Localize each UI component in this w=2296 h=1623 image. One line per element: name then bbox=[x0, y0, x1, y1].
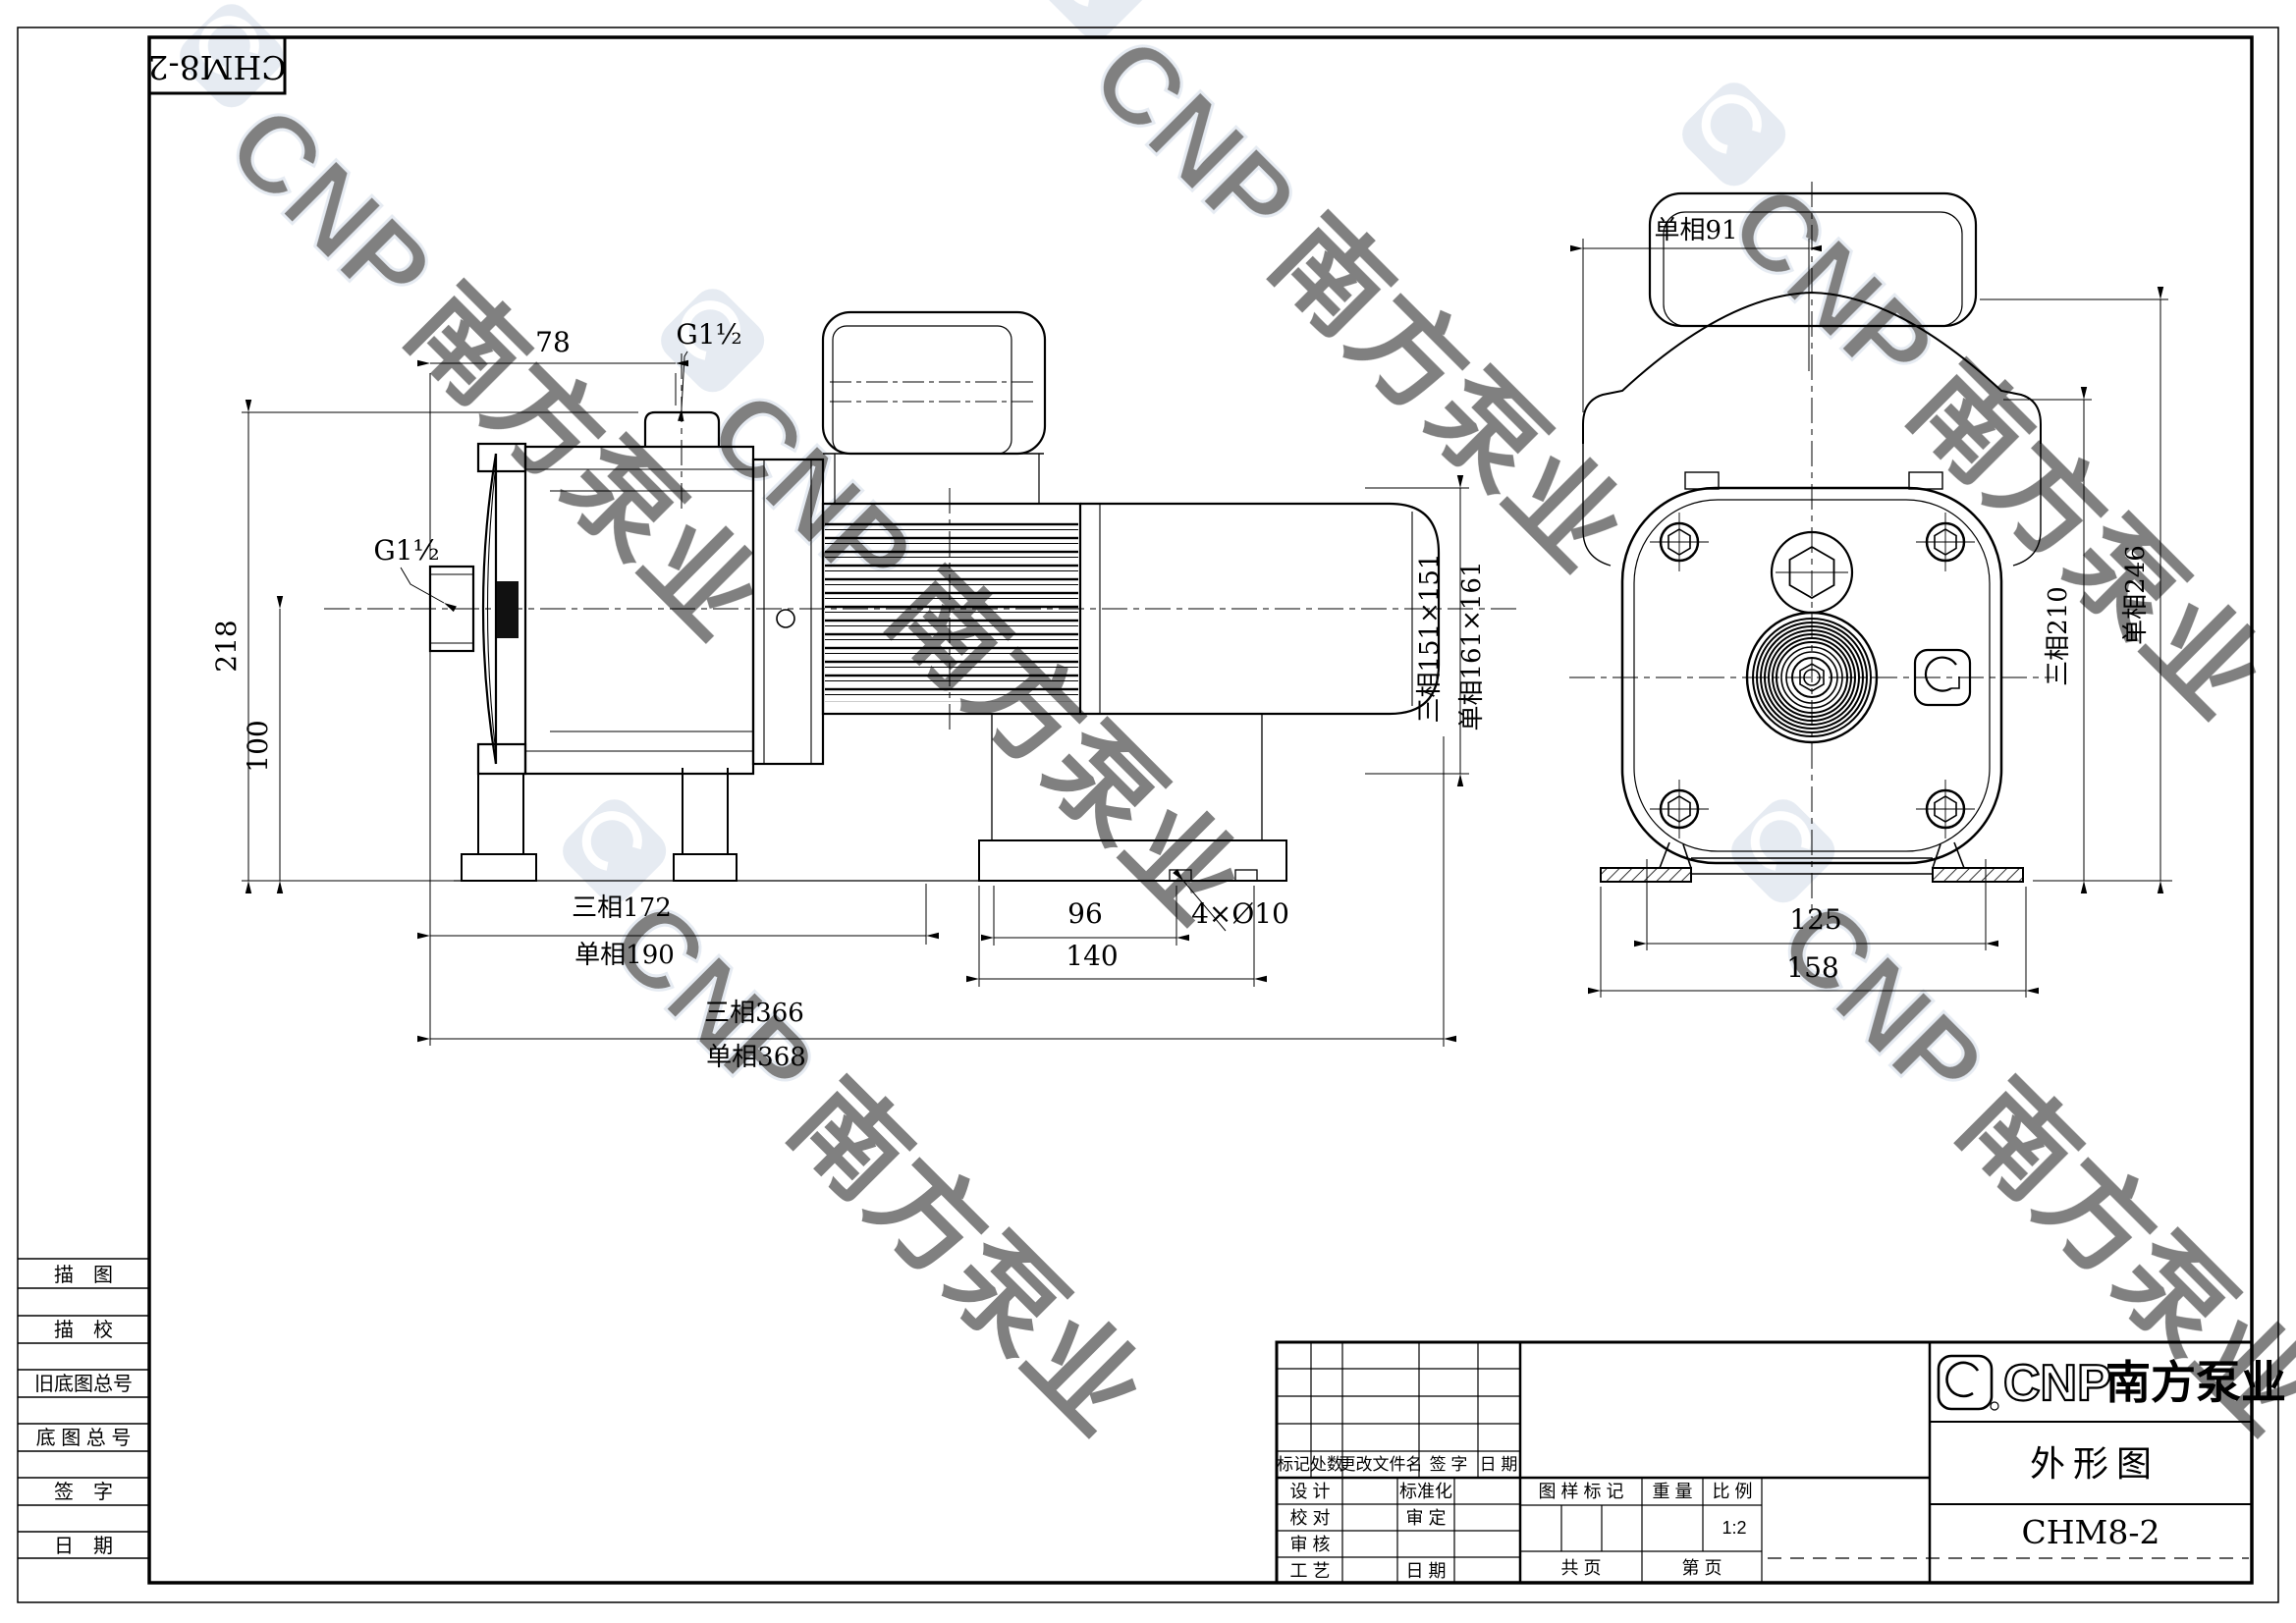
rev-col-file: 更改文件名 bbox=[1339, 1455, 1423, 1474]
sig-standard: 标准化 bbox=[1399, 1482, 1452, 1501]
sig-design: 设 计 bbox=[1289, 1482, 1330, 1501]
stamp-mark-label: 图 样 标 记 bbox=[1538, 1482, 1623, 1501]
dim-91: 单相91 bbox=[1654, 216, 1737, 245]
cooling-fins bbox=[825, 517, 1078, 702]
dim-172: 三相172 bbox=[572, 893, 672, 923]
motor-body bbox=[823, 504, 1080, 714]
sidebar-item-trace-check: 描 校 bbox=[54, 1319, 113, 1341]
sidebar-item-trace: 描 图 bbox=[54, 1264, 113, 1286]
dim-96: 96 bbox=[1067, 897, 1103, 930]
dim-161: 单相161×161 bbox=[1457, 561, 1487, 730]
watermark-name: 南方泵业 bbox=[1249, 193, 1647, 591]
drain-hole bbox=[777, 610, 794, 627]
dim-218: 218 bbox=[210, 620, 243, 672]
watermark-name: 南方泵业 bbox=[768, 1057, 1166, 1455]
cnp-swirl-icon bbox=[1947, 1363, 1978, 1396]
watermark-cnp: CNP bbox=[1068, 14, 1320, 265]
dim-port-top: G1½ bbox=[676, 318, 741, 351]
engineering-drawing-canvas: CNP 南方泵业 CNP 南方泵业 CNP 南方泵业 CNP 南方泵业 CNP … bbox=[0, 0, 2296, 1623]
sidebar-grid bbox=[18, 1259, 149, 1558]
cnp-logo-icon bbox=[1674, 75, 1794, 194]
sidebar-item-base-no: 底 图 总 号 bbox=[36, 1427, 132, 1449]
brand-name: 南方泵业 bbox=[2105, 1357, 2286, 1408]
dim-190: 单相190 bbox=[574, 941, 675, 970]
dim-140: 140 bbox=[1066, 940, 1118, 972]
rev-col-mark: 标记 bbox=[1277, 1455, 1310, 1474]
sidebar-item-old-base-no: 旧底图总号 bbox=[34, 1373, 133, 1395]
sig-audit: 审 核 bbox=[1289, 1535, 1330, 1554]
shaft-seal-section bbox=[497, 581, 519, 638]
sig-date: 日 期 bbox=[1405, 1561, 1446, 1581]
sig-check: 校 对 bbox=[1289, 1508, 1330, 1528]
drawing-sheet: CNP 南方泵业 CNP 南方泵业 CNP 南方泵业 CNP 南方泵业 CNP … bbox=[0, 0, 2296, 1623]
front-view bbox=[1569, 182, 2054, 918]
rev-col-sign: 签 字 bbox=[1430, 1455, 1468, 1474]
dim-246: 单相246 bbox=[2121, 545, 2151, 645]
dim-78: 78 bbox=[535, 326, 571, 358]
dim-100: 100 bbox=[242, 720, 274, 772]
stamp-scale-label: 比 例 bbox=[1712, 1482, 1752, 1501]
model-box-label: CHM8-2 bbox=[148, 48, 287, 86]
stamp-pages-total: 共 页 bbox=[1560, 1558, 1601, 1578]
brand-cnp: CNP bbox=[2003, 1355, 2111, 1412]
stamp-page-no: 第 页 bbox=[1681, 1558, 1722, 1578]
title-block-labels: 标记 处数 更改文件名 签 字 日 期 设 计 标准化 校 对 审 定 审 核 … bbox=[1277, 1443, 2159, 1581]
rev-col-date: 日 期 bbox=[1480, 1455, 1518, 1474]
sig-process: 工 艺 bbox=[1289, 1561, 1330, 1581]
drawing-model: CHM8-2 bbox=[2022, 1513, 2160, 1551]
watermark-cnp: CNP bbox=[204, 82, 456, 334]
dim-366: 三相366 bbox=[704, 999, 804, 1028]
watermark-cnp: CNP bbox=[1707, 161, 1958, 412]
stamp-weight-label: 重 量 bbox=[1652, 1482, 1692, 1501]
sidebar-item-signature: 签 字 bbox=[54, 1481, 113, 1503]
sidebar-labels: 描 图 描 校 旧底图总号 底 图 总 号 签 字 日 期 bbox=[34, 1264, 133, 1557]
drawing-title: 外形图 bbox=[2030, 1443, 2159, 1484]
dim-151: 三相151×151 bbox=[1415, 553, 1445, 723]
registered-mark-icon bbox=[1991, 1402, 1998, 1410]
brand-logo: CNP 南方泵业 bbox=[1939, 1355, 2286, 1412]
dim-210: 三相210 bbox=[2044, 586, 2073, 686]
dim-port-left: G1½ bbox=[373, 534, 439, 567]
dim-holes: 4×Ø10 bbox=[1191, 897, 1289, 930]
dim-158: 158 bbox=[1786, 951, 1838, 984]
stamp-scale-value: 1:2 bbox=[1722, 1518, 1746, 1538]
dim-125: 125 bbox=[1789, 903, 1841, 936]
sig-approve: 审 定 bbox=[1405, 1508, 1446, 1528]
sidebar-item-date: 日 期 bbox=[54, 1536, 113, 1557]
dim-368: 单相368 bbox=[706, 1043, 806, 1072]
